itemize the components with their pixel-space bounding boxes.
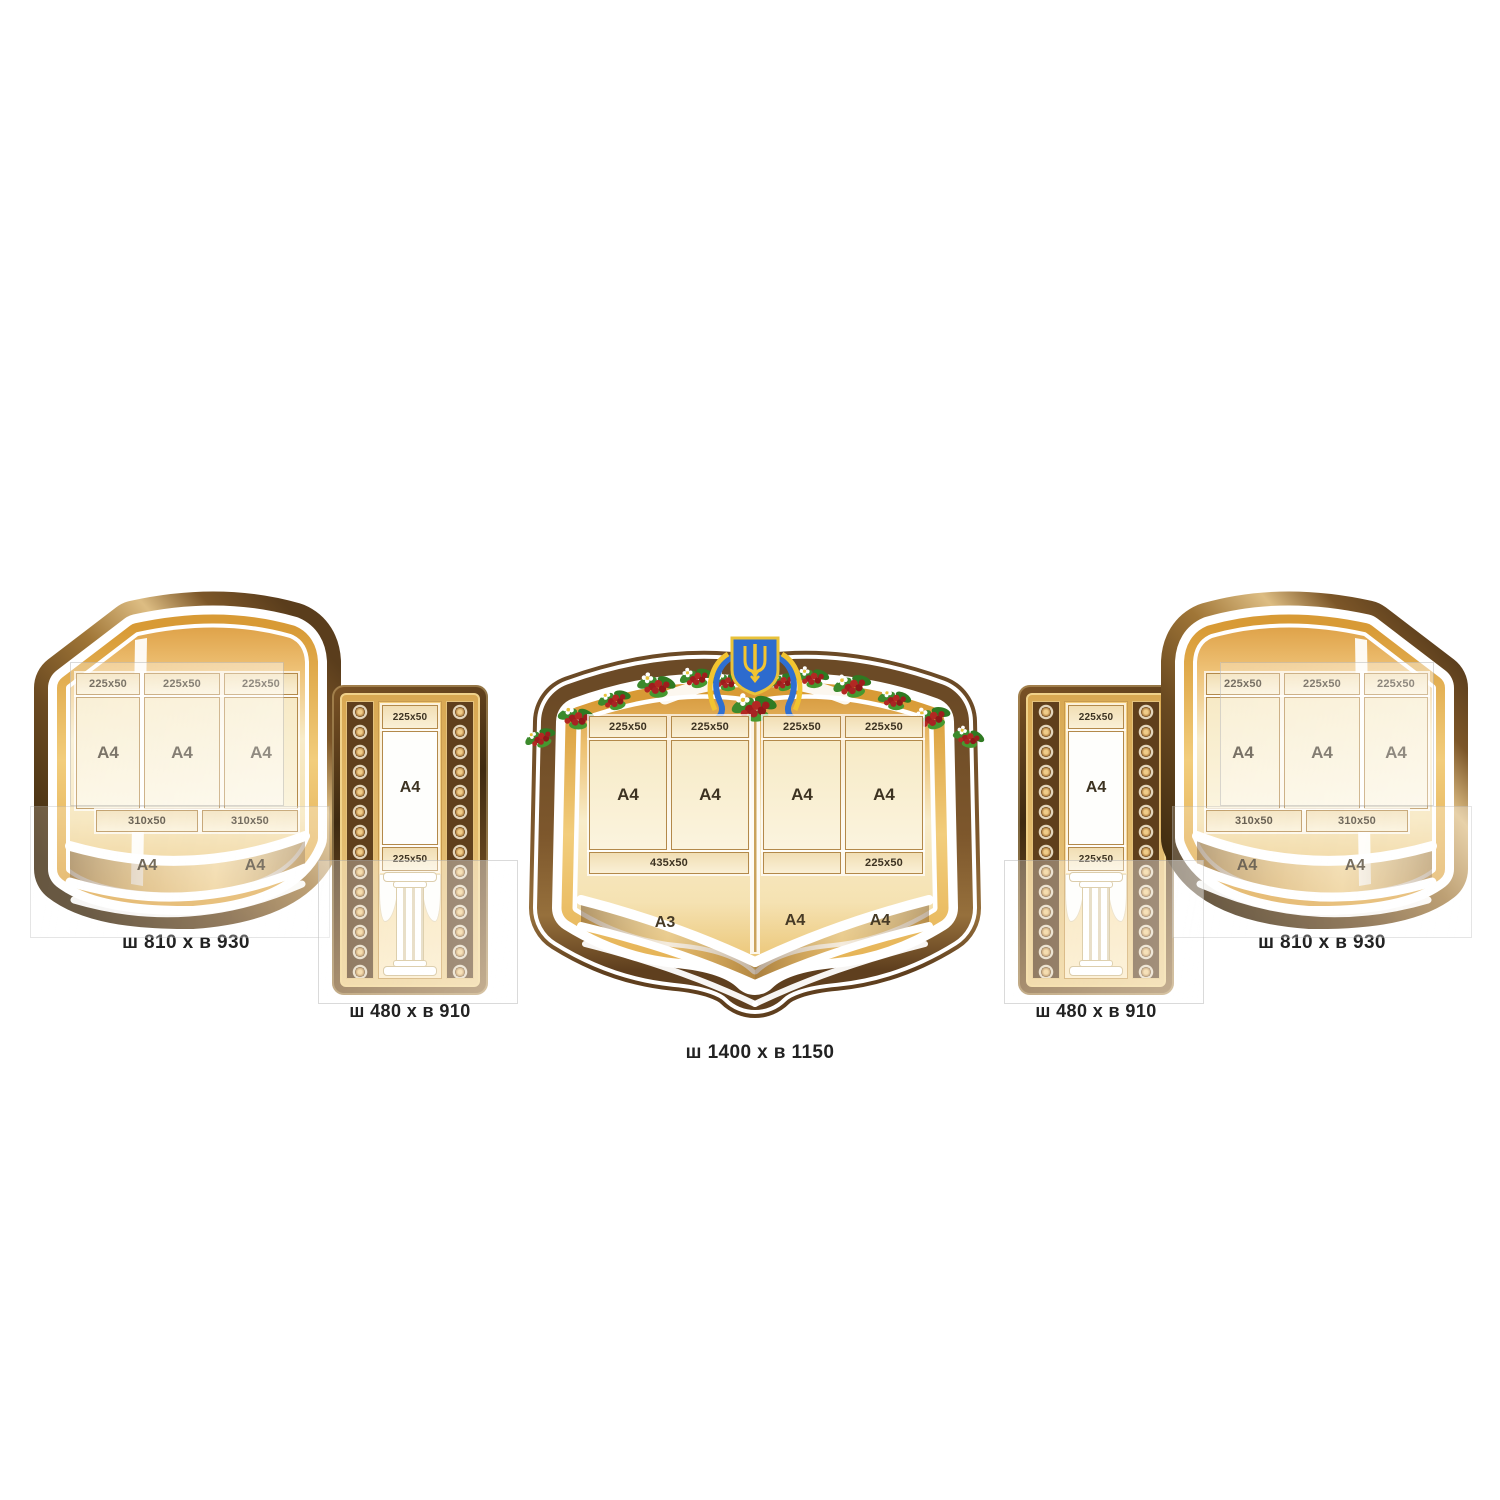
book-stands-collage: 225x50 225x50 225x50 A4 A4 A4 310x50 310… [0,0,1500,1500]
plexi-overlay [1172,806,1472,938]
pocket-a4: A4 [763,740,841,850]
plexi-overlay [30,806,330,938]
pocket-225x50: 225x50 [845,852,923,874]
pocket-a4: A4 [382,731,438,845]
pocket-225x50: 225x50 [671,716,749,738]
pocket-a4: A4 [589,740,667,850]
page-bottom-a3-label: A3 [635,912,695,934]
page-bottom-a4-label: A4 [850,910,910,932]
pocket-a4: A4 [845,740,923,850]
pocket-225x50: 225x50 [845,716,923,738]
page-bottom-a4-label: A4 [765,910,825,932]
dimensions-label-right-column: ш 480 х в 910 [1018,1001,1174,1022]
pocket-435x50: 435x50 [589,852,749,874]
pocket-225x50: 225x50 [763,716,841,738]
pocket-225x50: 225x50 [1068,705,1124,729]
book-stand-center: 225x50 225x50 225x50 225x50 A4 A4 A4 A4 … [515,612,1005,1064]
pocket-225x50: 225x50 [382,705,438,729]
dimensions-label-left-column: ш 480 х в 910 [332,1001,488,1022]
pocket-225x50: 225x50 [589,716,667,738]
plexi-overlay [1220,662,1434,806]
dimensions-label-center-book: ш 1400 х в 1150 [515,1042,1005,1064]
plexi-overlay [318,860,518,1004]
book-spine-line [754,704,757,952]
pocket-a4: A4 [671,740,749,850]
pocket-strip [763,852,841,874]
pocket-a4: A4 [1068,731,1124,845]
plexi-overlay [70,662,284,806]
